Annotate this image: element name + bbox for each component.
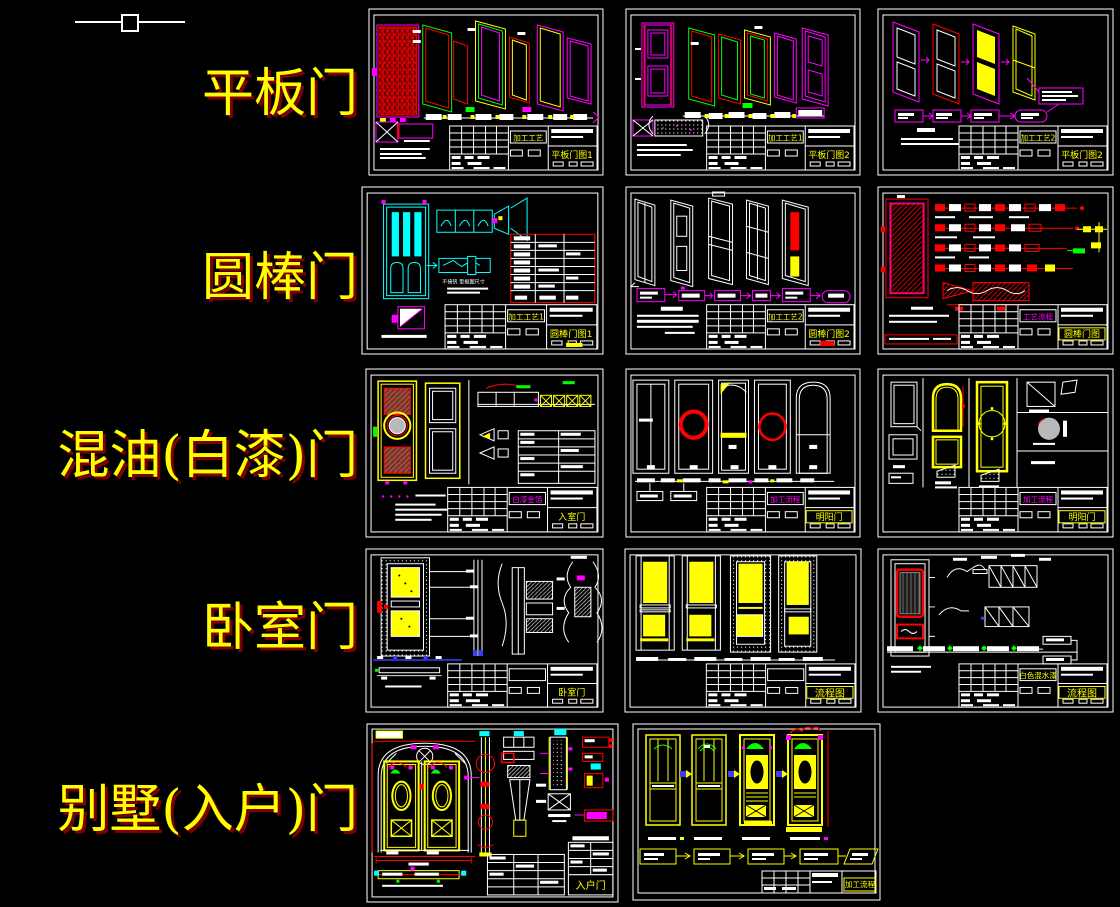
door-with-porthole	[373, 381, 416, 484]
two-panel-door-elevation	[635, 23, 674, 107]
sheet-round-bar-door-3[interactable]: 工艺流程 圆棒门图	[877, 186, 1114, 355]
row-label-villa-entry-door[interactable]: 别墅(入户)门	[57, 782, 358, 839]
sheet-bedroom-door-1[interactable]: 卧室门	[365, 548, 604, 713]
parts-tables: 入户门	[487, 836, 612, 895]
double-entry-door-elevation	[372, 741, 475, 865]
sheet-flat-panel-door-1[interactable]: 加工工艺 平板门图1	[368, 8, 604, 176]
notes	[901, 128, 959, 145]
row-label-bedroom-door[interactable]: 卧室门	[202, 600, 358, 657]
process-flow-strip	[635, 478, 834, 483]
title-block: 加工流程 明阳门	[707, 487, 854, 532]
sheet-title: 圆棒门图1	[550, 328, 593, 340]
door-assembly-stages	[646, 727, 828, 832]
porthole-frame-stage	[977, 382, 1007, 487]
title-block: 卧室门	[448, 664, 597, 707]
arched-frame-stage	[933, 384, 965, 488]
yellow-chain	[1067, 222, 1107, 253]
sheet-title: 明阳门	[816, 511, 843, 523]
process-label: 加工工艺1	[508, 311, 544, 321]
mullion-detail-column	[540, 729, 572, 822]
door-frames-exploded	[689, 26, 828, 108]
detail-table	[376, 122, 433, 159]
sill-detail	[633, 116, 709, 156]
sheet-title: 平板门图2	[1061, 149, 1103, 161]
sheet-title: 加工流程	[845, 879, 875, 889]
process-label: 加工流程	[1023, 494, 1053, 504]
spec-table	[518, 431, 595, 484]
sheet-round-bar-door-1[interactable]: 不接钒 型棍图尺寸	[361, 186, 604, 355]
process-label: 加工工艺2	[768, 311, 803, 321]
sheet-title: 入户门	[575, 879, 605, 892]
door-elevation	[373, 558, 478, 660]
clamp-machine-details	[939, 554, 1051, 627]
milling-machine-detail	[427, 198, 527, 274]
process-label: 加工工艺1	[768, 132, 803, 142]
sill-assembly	[374, 867, 466, 887]
process-flow-strip	[636, 657, 835, 661]
title-block: 加工工艺2 圆棒门图2	[707, 305, 854, 349]
title-block: 工艺流程 圆棒门图	[959, 305, 1107, 349]
process-flow-strip	[424, 107, 599, 123]
sheet-title: 圆棒门图	[1064, 328, 1100, 340]
row-label-flat-panel-door[interactable]: 平板门	[202, 66, 358, 123]
process-label: 工艺流程	[1023, 311, 1053, 321]
title-block: 白色混水漆 流程图	[959, 664, 1107, 707]
process-flow-strip	[887, 636, 1077, 664]
stage-dimension-bars	[648, 837, 828, 840]
sheet-flat-panel-door-2[interactable]: 加工工艺1 平板门图2	[625, 8, 861, 176]
wedge-details	[480, 429, 508, 459]
title-block: 加工工艺 平板门图1	[450, 126, 597, 170]
title-block: 白漆金箔 入室门	[448, 487, 597, 532]
row-label-white-paint-door[interactable]: 混油(白漆)门	[57, 428, 358, 485]
door-panel-hatched	[372, 25, 419, 122]
parts-table	[511, 234, 595, 302]
corner-detail	[382, 307, 427, 338]
sheet-white-paint-door-1[interactable]: 白漆金箔 入室门	[365, 368, 604, 538]
cad-model-space[interactable]: 平板门 圆棒门 混油(白漆)门 卧室门 别墅(入户)门	[0, 0, 1120, 907]
door-section-strip	[473, 560, 483, 656]
process-flow-boxes	[637, 289, 850, 303]
sheet-title: 入室门	[558, 511, 585, 523]
title-block: 加工流程 明阳门	[959, 487, 1107, 532]
title-block: 加工工艺1 圆棒门图1	[445, 305, 597, 349]
blank-door-panels	[889, 382, 921, 483]
title-block: 加工工艺2 平板门图2	[959, 126, 1107, 170]
sheet-villa-entry-door-1[interactable]: 入户门	[366, 723, 619, 903]
process-label: 加工工艺	[513, 132, 543, 142]
process-label: 加工流程	[770, 494, 800, 504]
edge-bander-machine	[478, 381, 595, 406]
cutter-profile-detail	[943, 283, 1029, 311]
sheet-title: 平板门图1	[551, 149, 593, 161]
sill-detail	[375, 668, 442, 688]
second-door-elevation	[426, 380, 469, 484]
process-label: 白漆金箔	[512, 494, 543, 504]
sheet-title: 平板门图2	[808, 149, 850, 161]
sheet-title: 流程图	[815, 686, 845, 699]
sheet-white-paint-door-2[interactable]: 加工流程 明阳门	[625, 368, 861, 538]
sheet-title: 明阳门	[1069, 511, 1096, 523]
sheet-villa-entry-door-2[interactable]: 加工流程	[632, 723, 882, 901]
sheet-title: 卧室门	[558, 686, 585, 698]
hatched-door-elevation	[881, 195, 928, 298]
sub-flow-boxes	[637, 483, 697, 500]
sheet-bedroom-door-2[interactable]: 流程图	[624, 548, 862, 713]
title-block: 加工流程	[762, 871, 876, 893]
process-flow-boxes	[895, 104, 1059, 122]
sheet-white-paint-door-3[interactable]: 加工流程 明阳门	[877, 368, 1114, 538]
process-flow-boxes	[640, 849, 878, 864]
sheet-round-bar-door-2[interactable]: 加工工艺2 圆棒门图2	[625, 186, 861, 355]
row-label-round-bar-door[interactable]: 圆棒门	[202, 250, 358, 307]
red-process-chains	[935, 204, 1084, 271]
sheet-title: 圆棒门图2	[808, 328, 850, 340]
door-stages-row	[633, 380, 830, 473]
dimension-note: 不接钒 型棍图尺寸	[442, 279, 485, 286]
door-stages-exploded	[893, 22, 1035, 104]
title-block: 流程图	[706, 664, 855, 707]
louvered-door	[891, 560, 935, 656]
title-block: 加工工艺1 平板门图2	[707, 126, 854, 170]
door-frames-exploded	[413, 21, 591, 112]
notes	[382, 494, 448, 520]
wireframe-door-stages	[631, 192, 808, 290]
process-label: 白色混水漆	[1019, 670, 1057, 680]
revision-tag	[376, 731, 402, 738]
sheet-flat-panel-door-3[interactable]: 加工工艺2 平板门图2	[877, 8, 1114, 176]
door-finish-stages	[636, 556, 817, 652]
hinge-fittings	[574, 737, 612, 821]
hardware-details	[1027, 380, 1077, 464]
notes	[885, 307, 957, 344]
sheet-bedroom-door-3[interactable]: 白色混水漆 流程图	[877, 548, 1114, 713]
notes	[637, 307, 699, 334]
cyan-door-elevation	[382, 200, 429, 299]
cursor-pickbox	[121, 14, 139, 32]
process-flow-strip	[683, 108, 824, 119]
stile-profile-details	[498, 556, 602, 654]
sheet-title: 流程图	[1067, 686, 1097, 699]
jamb-detail-column	[502, 731, 547, 836]
process-label: 加工工艺2	[1021, 133, 1056, 143]
